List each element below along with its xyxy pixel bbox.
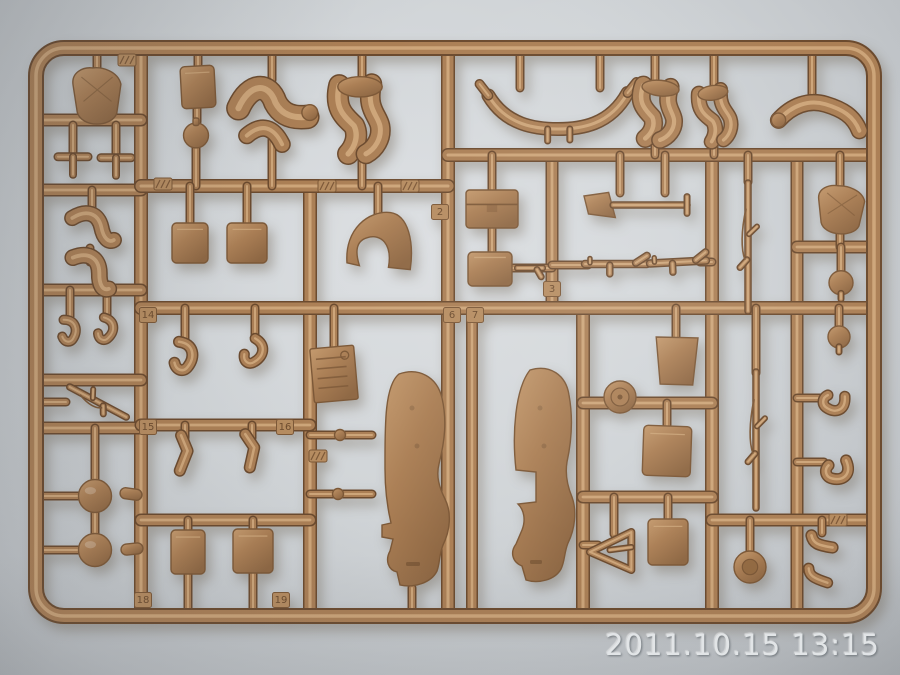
sprue-hatch-tab xyxy=(318,180,336,192)
saddle-piece xyxy=(344,211,413,274)
torso-figure xyxy=(73,68,121,124)
part-number-tag: 15 xyxy=(140,420,157,435)
stub-nub-a xyxy=(335,430,346,441)
small-box xyxy=(468,252,512,286)
machine-gun-b xyxy=(650,252,707,273)
part-number-tag: 18 xyxy=(135,593,152,608)
sprue-parts xyxy=(58,65,866,586)
svg-text:14: 14 xyxy=(142,310,155,321)
part-number-tag: 3 xyxy=(544,282,561,297)
svg-text:16: 16 xyxy=(279,422,292,433)
part-number-tag: 2 xyxy=(432,205,449,220)
lid-box xyxy=(466,190,518,228)
small-figure-a xyxy=(180,435,188,470)
head-a xyxy=(829,271,853,299)
runner-grid xyxy=(36,48,874,616)
bent-arm-a xyxy=(72,213,114,241)
pedal-b xyxy=(101,158,131,176)
crate-b xyxy=(233,529,273,573)
leg-figure-b xyxy=(637,78,680,141)
ammo-box-b xyxy=(227,223,267,263)
part-number-tag: 19 xyxy=(273,593,290,608)
holster-b xyxy=(242,337,266,367)
radio-box xyxy=(180,65,216,109)
stub-nub-b xyxy=(333,489,344,500)
hand-a xyxy=(60,318,77,342)
storage-box xyxy=(642,425,692,477)
machine-gun-a xyxy=(585,256,647,274)
svg-text:2: 2 xyxy=(437,207,443,218)
sprue-hatch-tab xyxy=(309,450,327,462)
part-number-tag: 14 xyxy=(140,308,157,323)
curved-linkage xyxy=(480,82,637,141)
road-wheel xyxy=(734,551,766,583)
boot-b xyxy=(807,568,830,582)
canteen xyxy=(184,118,209,148)
svg-text:3: 3 xyxy=(549,284,555,295)
ball-b xyxy=(79,534,112,567)
arm-right xyxy=(771,103,859,131)
part-number-tag: 16 xyxy=(277,420,294,435)
sprue-hatch-tab xyxy=(829,514,847,526)
svg-text:19: 19 xyxy=(275,595,288,606)
crate-a xyxy=(171,530,205,574)
sprue-svg: 26731415161819 xyxy=(0,0,900,675)
pouch-b xyxy=(823,457,853,484)
rifle-a xyxy=(740,183,757,311)
sprue-photo: 26731415161819 2011.10.15 13:15 xyxy=(0,0,900,675)
sprue-hatch-tab xyxy=(154,178,172,190)
camera-timestamp: 2011.10.15 13:15 xyxy=(605,628,880,662)
sprue-hatch-tab xyxy=(118,54,136,66)
box-lower xyxy=(648,519,688,565)
hand-b xyxy=(97,317,114,341)
fender-left xyxy=(382,372,449,586)
part-number-tag: 7 xyxy=(467,308,484,323)
holster-a xyxy=(175,342,193,370)
sprue-hatch-tab xyxy=(401,180,419,192)
head-b xyxy=(828,326,850,352)
svg-text:18: 18 xyxy=(137,595,150,606)
fender-right xyxy=(513,368,575,581)
pedal-a xyxy=(58,157,88,175)
svg-text:6: 6 xyxy=(449,310,455,321)
ball-a xyxy=(79,480,112,513)
torso-right xyxy=(816,184,865,235)
svg-text:7: 7 xyxy=(472,310,478,321)
capsule-b xyxy=(120,542,143,555)
leg-figure-a xyxy=(338,77,382,154)
trapezoid-box xyxy=(656,337,698,385)
part-number-tag: 6 xyxy=(444,308,461,323)
headlight xyxy=(604,381,636,413)
leg-figure-c xyxy=(697,84,734,143)
license-plate xyxy=(310,345,359,403)
shovel xyxy=(584,192,687,217)
ammo-box-a xyxy=(172,223,208,263)
bending-figure xyxy=(238,88,317,144)
a-frame xyxy=(590,532,631,570)
pouch-a xyxy=(822,392,847,412)
svg-text:15: 15 xyxy=(142,422,155,433)
rifle-b xyxy=(748,372,765,508)
